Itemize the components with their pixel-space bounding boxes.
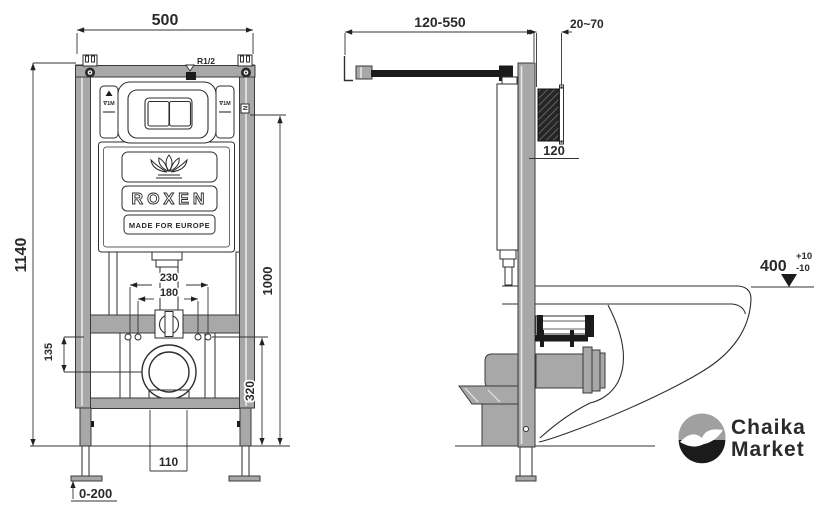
bowl-mounting-hardware [535, 315, 594, 347]
svg-text:1000: 1000 [260, 267, 275, 296]
frame-tube [109, 252, 117, 315]
brand-tagline: MADE FOR EUROPE [129, 221, 210, 230]
front-view: 500 1140 ROXEN [13, 12, 290, 501]
inwall-flush-plate [538, 85, 564, 144]
svg-text:0-200: 0-200 [79, 486, 112, 501]
svg-text:-10: -10 [796, 263, 810, 274]
corner-plates [83, 55, 252, 66]
svg-text:500: 500 [152, 12, 179, 29]
dim-rim-height: 400 +10 -10 [751, 251, 814, 287]
dim-frame-depth: 120 [529, 143, 579, 159]
svg-text:180: 180 [160, 287, 178, 299]
svg-text:∇1M: ∇1M [219, 101, 231, 107]
side-view: 120-550 20~70 [345, 14, 815, 481]
svg-text:∇1M: ∇1M [103, 101, 115, 107]
svg-text:R1/2: R1/2 [197, 56, 215, 66]
seagull-icon [679, 414, 726, 464]
top-rail [76, 66, 256, 78]
cistern-side [497, 77, 518, 285]
brand-name: ROXEN [132, 191, 209, 208]
wall-support-rod [345, 56, 514, 81]
level-marker-icon [781, 274, 797, 287]
dim-support-range: 120-550 [345, 14, 534, 62]
corner-bolt [85, 68, 95, 78]
frame-bar-side [518, 63, 535, 447]
svg-text:120: 120 [543, 143, 565, 158]
drain-outlet-inner [149, 352, 189, 392]
svg-text:+10: +10 [796, 251, 812, 262]
dim-leg-adjustment: 0-200 [71, 481, 117, 501]
technical-drawing: 500 1140 ROXEN [0, 0, 840, 522]
rail-mark: N [241, 104, 250, 113]
bottom-rail [91, 398, 241, 409]
svg-text:400: 400 [760, 258, 787, 275]
dim-frame-height: 1140 [13, 63, 76, 446]
adjustable-foot-side [516, 447, 536, 481]
dim-frame-width: 500 [77, 12, 253, 54]
svg-text:120-550: 120-550 [414, 14, 466, 30]
watermark-line1: Chaika [731, 416, 806, 439]
installation-frame-drawing: 500 1140 ROXEN [0, 0, 840, 522]
svg-text:230: 230 [160, 272, 178, 284]
dim-wall-offset: 20~70 [526, 17, 604, 87]
store-watermark: Chaika Market [679, 414, 806, 464]
flush-plate-assembly: ∇1M ∇1M [100, 82, 234, 143]
corner-bolt [241, 68, 251, 78]
svg-text:1140: 1140 [13, 238, 30, 273]
svg-text:20~70: 20~70 [570, 17, 604, 31]
frame-tube [120, 333, 130, 398]
svg-text:N: N [244, 106, 250, 110]
svg-text:320: 320 [243, 381, 257, 401]
svg-text:110: 110 [159, 455, 179, 469]
cistern: ROXEN MADE FOR EUROPE [99, 142, 235, 252]
frame-tube [205, 333, 215, 398]
svg-text:135: 135 [43, 343, 55, 361]
dim-outlet-width: 110 [150, 410, 187, 471]
watermark-line2: Market [731, 438, 805, 461]
water-inlet-fitting [155, 310, 183, 338]
